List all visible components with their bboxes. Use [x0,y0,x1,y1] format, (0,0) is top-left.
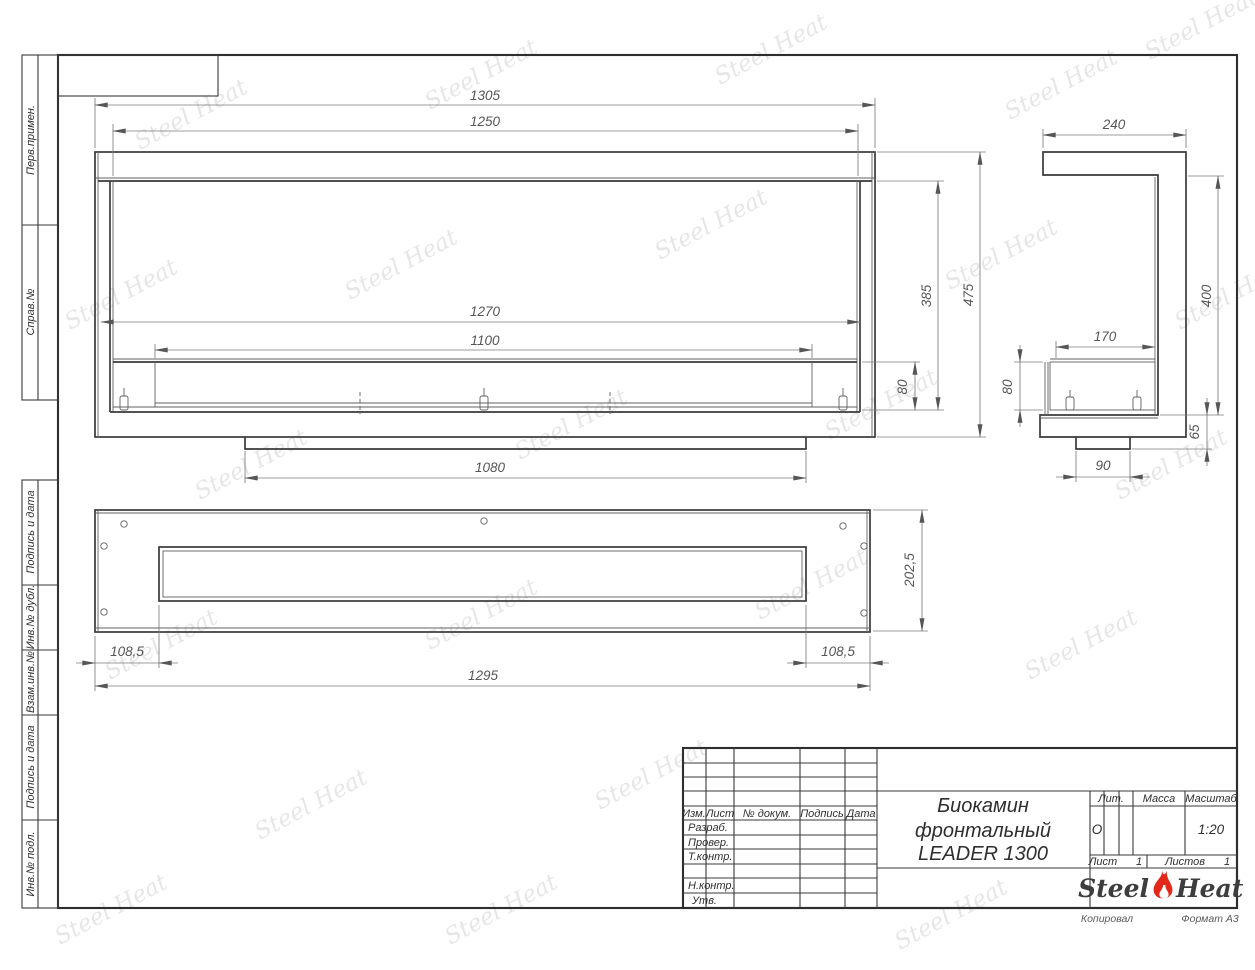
dim-front-475: 475 [961,283,976,306]
side-view [1040,152,1186,449]
doc-title-line1: Биокамин [937,795,1029,817]
dim-side-90: 90 [1095,458,1111,473]
watermark-text: Steel Heat [1021,604,1143,685]
steel-heat-logo: Steel Heat [1078,870,1244,903]
sheet-footer: Копировал Формат А3 [1081,913,1239,925]
title-block: Изм. Лист № докум. Подпись Дата Разраб. … [682,748,1243,908]
row-label-utv: Утв. [691,895,717,907]
dim-side-240: 240 [1102,117,1126,132]
row-label-nkontr: Н.контр. [688,880,735,892]
margin-label-vzam-inv: Взам.инв.№ [25,651,37,713]
logo-heat-text: Heat [1175,874,1244,903]
dim-side-400: 400 [1199,284,1214,307]
side-foot [1076,437,1130,449]
sheets-label: Листов [1164,856,1205,868]
watermark-text: Steel Heat [421,34,543,115]
dim-front-1305: 1305 [470,88,501,103]
row-label-prover: Провер. [688,837,729,849]
col-header-sign: Подпись [800,808,844,820]
flame-icon [1154,870,1173,899]
dim-front-1270: 1270 [470,304,501,319]
footer-format: Формат А3 [1181,913,1239,925]
row-label-tkontr: Т.контр. [688,851,732,863]
col-header-doc: № докум. [743,808,791,820]
lit-label: Лит. [1097,793,1124,805]
col-header-date: Дата [844,808,875,820]
doc-title-line2: фронтальный [915,820,1051,842]
watermark-text: Steel Heat [341,224,463,305]
margin-label-inv-dubl: Инв.№ дубл. [25,585,37,650]
sheet-value: 1 [1136,856,1142,868]
margin-label-podpis-data-1: Подпись и дата [25,490,37,573]
row-label-razrab: Разраб. [688,822,728,834]
watermark-text: Steel Heat [751,544,873,625]
watermark-text: Steel Heat [131,74,253,155]
sheets-value: 1 [1224,856,1230,868]
sheet-label: Лист [1088,856,1117,868]
watermark-text: Steel Heat [51,869,173,950]
watermark-text: Steel Heat [891,874,1013,955]
dim-front-385: 385 [919,284,934,307]
dim-side-170: 170 [1094,329,1117,344]
mass-label: Масса [1143,793,1176,805]
watermark-text: Steel Heat [251,764,373,845]
scale-label: Масштаб [1185,793,1237,805]
col-header-izm: Изм. [682,808,705,820]
dim-front-1100: 1100 [470,333,500,348]
watermark-text: Steel Heat [591,734,713,815]
margin-label-sprav-no: Справ.№ [25,288,37,335]
drawing-canvas: Steel Heat Steel Heat Steel Heat Steel H… [0,0,1255,970]
dim-top-202: 202,5 [902,553,917,588]
watermark-text: Steel Heat [711,9,833,90]
dim-side-80: 80 [1000,379,1015,395]
watermark-text: Steel Heat [941,214,1063,295]
corner-stamp-block [58,55,218,96]
margin-label-perv-primen: Перв.примен. [25,105,37,175]
col-header-list: Лист [705,808,734,820]
dim-top-108-left: 108,5 [110,644,144,659]
glass-clips-side [1066,390,1141,410]
dim-side-65: 65 [1187,424,1202,440]
dim-top-108-right: 108,5 [821,644,855,659]
footer-copied: Копировал [1081,913,1133,925]
watermark-text: Steel Heat [651,184,773,265]
margin-label-podpis-data-2: Подпись и дата [25,725,37,808]
side-dimensions: 240 170 80 400 65 90 [1000,117,1224,482]
margin-tables: Перв.примен. Справ.№ Подпись и дата Инв.… [22,55,58,908]
doc-title-line3: LEADER 1300 [918,843,1048,865]
watermark-text: Steel Heat [441,869,563,950]
dim-front-1080: 1080 [475,460,506,475]
scale-value: 1:20 [1198,822,1225,837]
watermark-text: Steel Heat [511,384,633,465]
drawing-sheet: Steel Heat Steel Heat Steel Heat Steel H… [0,0,1255,970]
dim-front-80: 80 [895,379,910,395]
dim-top-1295: 1295 [468,668,499,683]
burner-opening [159,547,806,601]
watermark-text: Steel Heat [421,574,543,655]
watermark-text: Steel Heat [1001,44,1123,125]
watermark-text: Steel Heat [61,254,183,335]
lit-value: О [1092,822,1103,837]
dim-front-1250: 1250 [470,114,501,129]
glass-clips-front [120,388,847,414]
margin-label-inv-podl: Инв.№ подл. [25,831,37,896]
logo-steel-text: Steel [1078,874,1149,903]
